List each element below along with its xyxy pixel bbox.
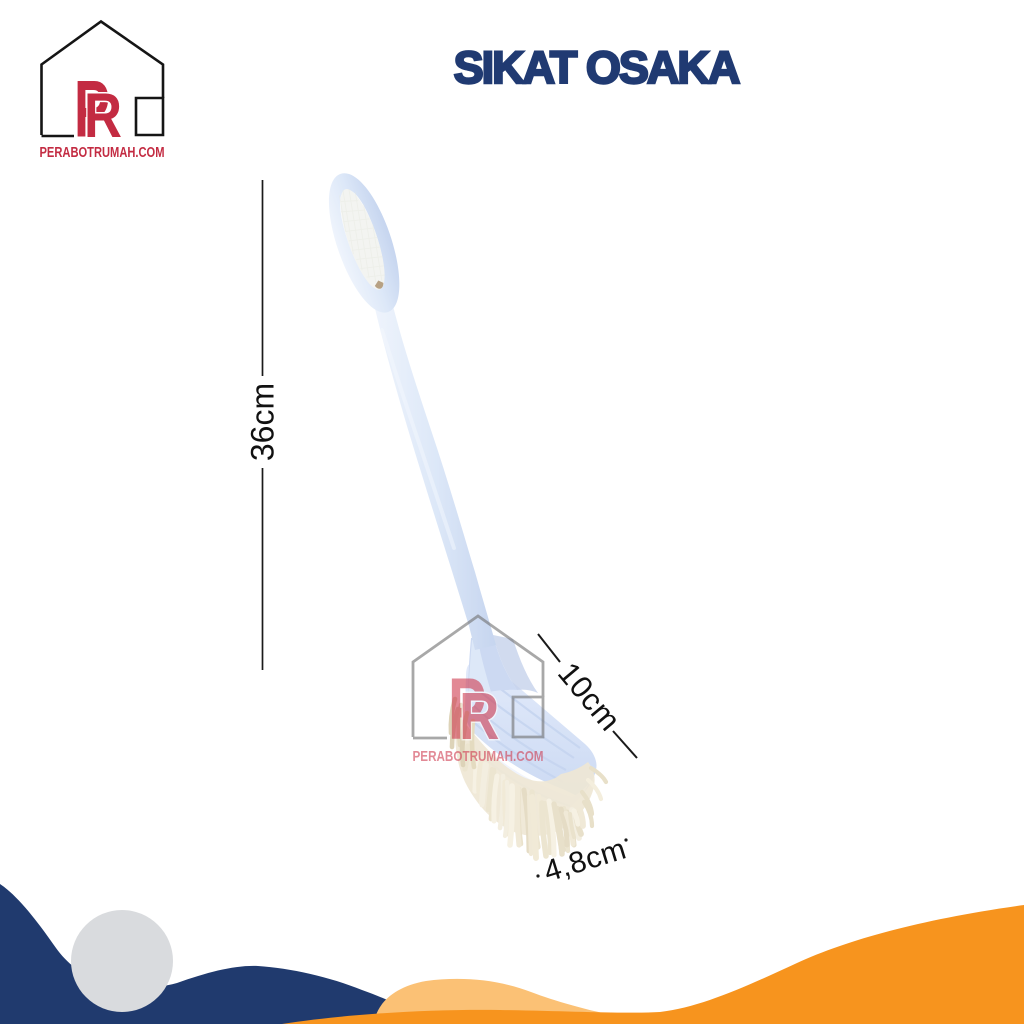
svg-text:PERABOTRUMAH.COM: PERABOTRUMAH.COM xyxy=(40,145,165,161)
svg-text:36cm: 36cm xyxy=(245,383,281,461)
svg-text:PERABOTRUMAH.COM: PERABOTRUMAH.COM xyxy=(413,748,544,765)
svg-text:R: R xyxy=(84,81,122,151)
svg-text:SIKAT OSAKA: SIKAT OSAKA xyxy=(454,42,740,93)
svg-text:R: R xyxy=(459,679,500,754)
